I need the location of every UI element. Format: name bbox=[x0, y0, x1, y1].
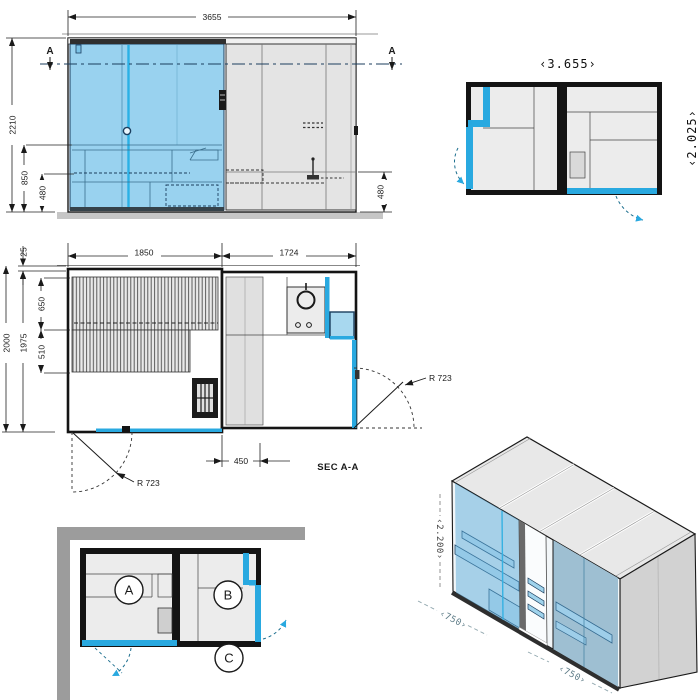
room-a-label: A bbox=[125, 583, 134, 598]
dim-seat-height-right: 480 bbox=[376, 185, 386, 199]
dim-depth-inner: 1975 bbox=[19, 333, 29, 352]
room-a-glass-front bbox=[82, 640, 177, 646]
sauna-glass-front bbox=[96, 429, 222, 433]
door-track-cap bbox=[76, 45, 81, 53]
dim-sauna-width: 1850 bbox=[135, 248, 154, 258]
dim-iso-module-depth: ‹750› bbox=[437, 609, 468, 631]
dim-bench-height: 850 bbox=[20, 171, 30, 185]
bench-upper-slats bbox=[72, 277, 218, 330]
bath-door-swing: R 723 bbox=[354, 368, 452, 428]
dim-bench-lower: 510 bbox=[37, 345, 47, 359]
glass-partition bbox=[325, 277, 330, 338]
bath-door-handle bbox=[355, 370, 360, 379]
dim-overall-height: 2210 bbox=[8, 115, 18, 134]
door-swing-arc-left bbox=[454, 148, 464, 184]
section-arrow-right-icon: A bbox=[388, 46, 395, 70]
wall-band-top bbox=[57, 527, 305, 540]
dim-wall-offset: 25 bbox=[19, 247, 29, 257]
bench-lower-slats bbox=[72, 330, 190, 372]
sauna-door-swing: R 723 bbox=[72, 432, 160, 492]
washbasin-panel bbox=[287, 287, 325, 333]
wall-band-left bbox=[57, 527, 70, 700]
section-marker-right: A bbox=[388, 46, 395, 57]
dim-overall-width: 3655 bbox=[203, 12, 222, 22]
iso-door-stile bbox=[502, 511, 503, 620]
room-a-heater bbox=[158, 608, 172, 633]
technical-drawing-sheet: A A 3655 2210 850 bbox=[0, 0, 700, 700]
glass-sill bbox=[70, 207, 224, 211]
panel-section bbox=[219, 44, 358, 210]
door-handle-icon bbox=[123, 127, 130, 134]
bath-glass-door bbox=[352, 340, 357, 428]
bath-glass-door-wall bbox=[567, 188, 657, 194]
dim-bath-width: 1724 bbox=[280, 248, 299, 258]
top-plan-view: ‹3.655› ‹2.025› bbox=[454, 57, 699, 220]
room-b-door-swing bbox=[263, 620, 286, 639]
fixture-block bbox=[570, 152, 585, 178]
glass-front-section bbox=[70, 39, 226, 211]
room-b-label: B bbox=[224, 588, 233, 603]
dim-depth-outer: 2000 bbox=[2, 333, 12, 352]
floor-slab bbox=[57, 212, 383, 219]
section-marker-left: A bbox=[46, 46, 53, 57]
front-elevation-view: A A 3655 2210 850 bbox=[6, 8, 402, 219]
door-c-label: C bbox=[224, 651, 233, 666]
dim-bench-upper: 650 bbox=[37, 297, 47, 311]
door-direction-schematic: A B C bbox=[57, 527, 305, 700]
panel-handle-icon bbox=[354, 126, 358, 135]
shower-bench bbox=[330, 312, 354, 338]
door-swing-arc-right bbox=[616, 196, 643, 220]
drawing-canvas: A A 3655 2210 850 bbox=[0, 0, 700, 700]
section-title: SEC A-A bbox=[317, 462, 359, 473]
dim-door-radius-left: R 723 bbox=[137, 478, 160, 488]
dim-seat-height-left: 480 bbox=[38, 186, 48, 200]
dim-door-offset: 450 bbox=[234, 456, 248, 466]
dim-door-radius-right: R 723 bbox=[429, 373, 452, 383]
iso-door-frame bbox=[519, 520, 526, 634]
room-a-door-swing bbox=[95, 648, 131, 676]
sauna-door-hinge bbox=[122, 426, 130, 433]
section-arrow-left-icon: A bbox=[46, 46, 53, 70]
dim-plan-depth: ‹2.025› bbox=[685, 109, 699, 167]
dim-plan-width: ‹3.655› bbox=[539, 57, 597, 71]
sauna-heater bbox=[192, 378, 218, 418]
section-plan-view: R 723 R 723 bbox=[1, 243, 452, 492]
dim-iso-height: ‹2.200› bbox=[434, 518, 444, 559]
